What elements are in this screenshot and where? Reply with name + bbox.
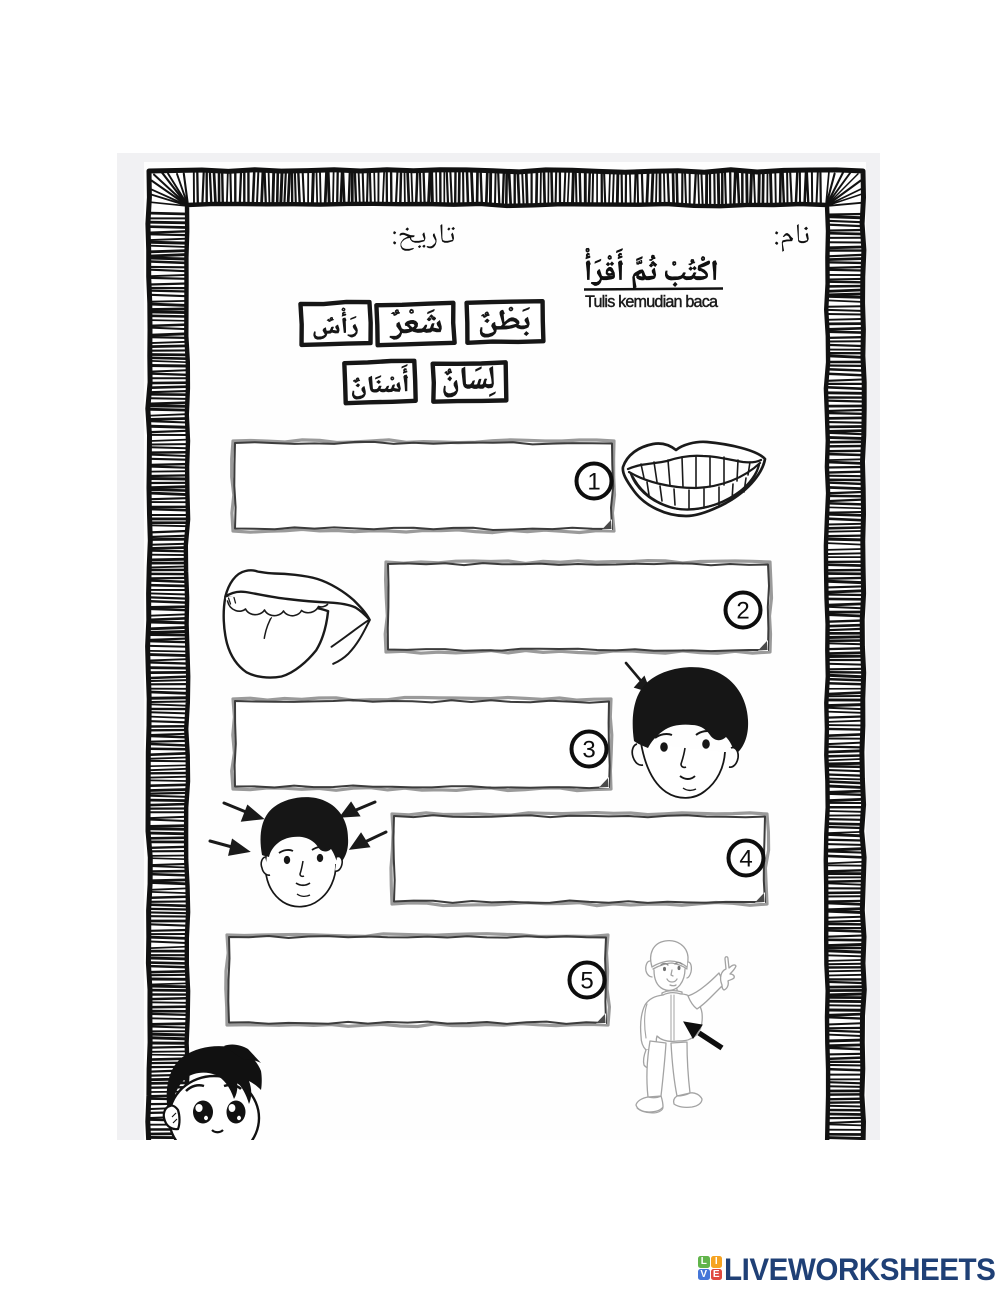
svg-text:4: 4 xyxy=(739,845,752,872)
svg-text:Tulis kemudian baca: Tulis kemudian baca xyxy=(585,293,718,311)
svg-text:3: 3 xyxy=(582,736,595,763)
svg-text:1: 1 xyxy=(587,468,600,495)
svg-text:5: 5 xyxy=(580,967,593,994)
svg-text:2: 2 xyxy=(736,597,749,624)
